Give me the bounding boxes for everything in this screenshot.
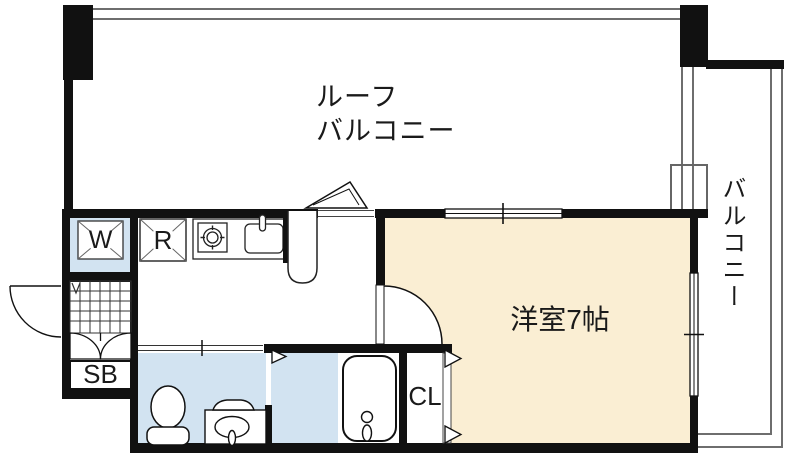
washer-label: W bbox=[78, 221, 123, 259]
western-room-label: 洋室7帖 bbox=[495, 300, 625, 336]
entrance-door-swing bbox=[10, 286, 61, 337]
toilet-tank bbox=[147, 427, 189, 445]
faucet-icon bbox=[260, 215, 266, 231]
balcony-label: バルコニー bbox=[714, 176, 749, 346]
toilet-bowl bbox=[151, 386, 185, 428]
bath-door-marker bbox=[272, 350, 286, 363]
western-room-door-swing bbox=[376, 285, 442, 344]
shoe-box-label: SB bbox=[70, 360, 131, 389]
window-right bbox=[684, 273, 704, 396]
bathtub-fitting bbox=[362, 412, 373, 423]
kitchen-counter bbox=[193, 215, 291, 259]
bathtub-drain bbox=[363, 425, 372, 441]
window-top bbox=[445, 203, 562, 224]
wash-basin bbox=[205, 400, 266, 446]
toilet-sliding-door bbox=[138, 340, 264, 356]
shoe-storage-door-arcs bbox=[70, 333, 131, 359]
roof-balcony-label-line1: ルーフ bbox=[316, 80, 455, 114]
roof-balcony-label: ルーフ バルコニー bbox=[316, 80, 455, 148]
bathtub bbox=[343, 356, 396, 441]
closet-label: CL bbox=[403, 381, 447, 411]
roof-balcony-label-line2: バルコニー bbox=[316, 114, 455, 148]
basin-faucet bbox=[229, 431, 236, 446]
floor-plan: ルーフ バルコニー バルコニー 洋室7帖 W R SB CL bbox=[0, 0, 800, 474]
entrance-tile-grid bbox=[70, 281, 131, 333]
toilet bbox=[147, 386, 189, 445]
counter-end-panel bbox=[288, 211, 317, 283]
refrigerator-label: R bbox=[140, 219, 186, 261]
